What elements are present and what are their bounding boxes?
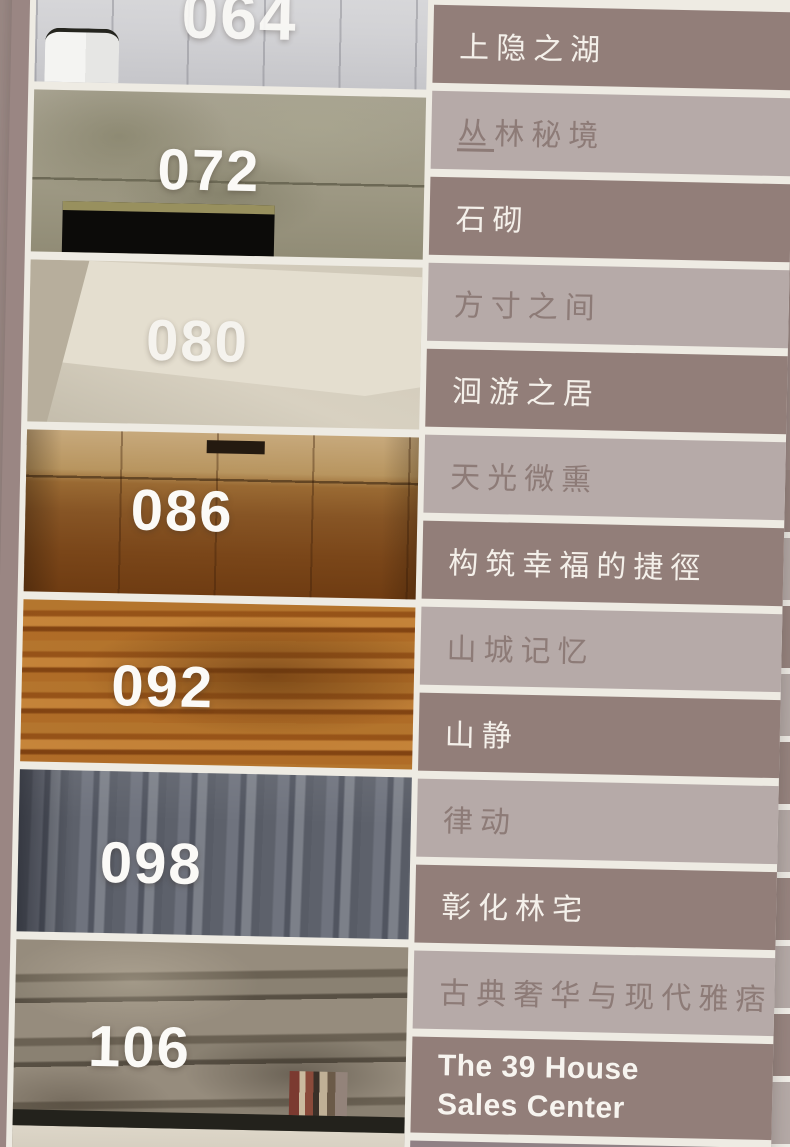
page-number-092: 092 [111,652,215,721]
page-number-080: 080 [145,307,249,376]
thumbnail-photo-064: 064 [34,0,429,90]
toc-title-text: The 39 House Sales Center [437,1046,640,1128]
toc-title-text: 古典奢华与现代雅痞 [439,968,773,1019]
photo-column: 064 072 080 086 092 098 106 [11,0,429,1147]
toc-title-cong-lin-mi-jing: 丛林秘境 [431,91,790,177]
toc-sheet: 064 072 080 086 092 098 106 [5,0,790,1147]
book-spines [289,1071,348,1116]
toc-title-text: 洄游之居 [452,366,601,413]
page-number-106: 106 [88,1013,192,1082]
thumbnail-photo-092: 092 [20,599,415,769]
toc-title-text: 构筑幸福的捷徑 [448,538,708,587]
toc-next-band-partial [409,1141,771,1147]
toc-title-shi-qi: 石砌 [429,177,790,263]
toc-title-shan-cheng-ji-yi: 山城记忆 [420,607,783,693]
page-number-086: 086 [130,477,234,546]
thumbnail-photo-106: 106 [11,939,408,1147]
toc-title-gu-dian-she-hua-yu-xian-dai-ya-pi: 古典奢华与现代雅痞 [413,951,776,1037]
thumbnail-photo-080: 080 [27,259,422,429]
toc-title-text: 彰化林宅 [441,882,590,929]
toc-title-shang-yin-zhi-hu: 上隐之湖 [432,5,790,91]
page-number-098: 098 [99,829,203,898]
toc-title-text: 天光微熏 [450,452,599,499]
toc-title-lv-dong: 律动 [416,779,779,865]
toc-title-tian-guang-wei-xun: 天光微熏 [423,435,786,521]
toc-title-text: 律动 [443,796,518,842]
toc-title-text: 山城记忆 [446,624,595,671]
title-column: 上隐之湖 丛林秘境 石砌 方寸之间 洄游之居 天光微熏 构筑幸福 [409,0,790,1147]
toc-title-text: 山静 [444,710,519,756]
page-number-064: 064 [181,0,299,55]
photographed-book-page: 064 072 080 086 092 098 106 [0,0,790,1147]
thumbnail-photo-098: 098 [17,769,412,939]
thumbnail-photo-086: 086 [24,429,419,599]
toc-title-hui-you-zhi-ju: 洄游之居 [425,349,788,435]
thumbnail-photo-072: 072 [31,89,426,259]
toc-title-the-39-house-sales-center: The 39 House Sales Center [410,1037,773,1141]
page-number-072: 072 [157,136,261,205]
toc-page: 064 072 080 086 092 098 106 [0,0,790,1147]
toc-title-text: 方寸之间 [453,280,602,327]
toc-title-gou-zhu-xing-fu-de-jie-jing: 构筑幸福的捷徑 [422,521,785,607]
toc-title-text: 丛林秘境 [457,108,606,155]
toc-title-text: 石砌 [455,194,530,240]
toc-title-zhang-hua-lin-zhai: 彰化林宅 [414,865,777,951]
toc-title-fang-cun-zhi-jian: 方寸之间 [427,263,790,349]
toc-title-shan-jing: 山静 [418,693,781,779]
toc-title-text: 上隐之湖 [459,22,608,69]
